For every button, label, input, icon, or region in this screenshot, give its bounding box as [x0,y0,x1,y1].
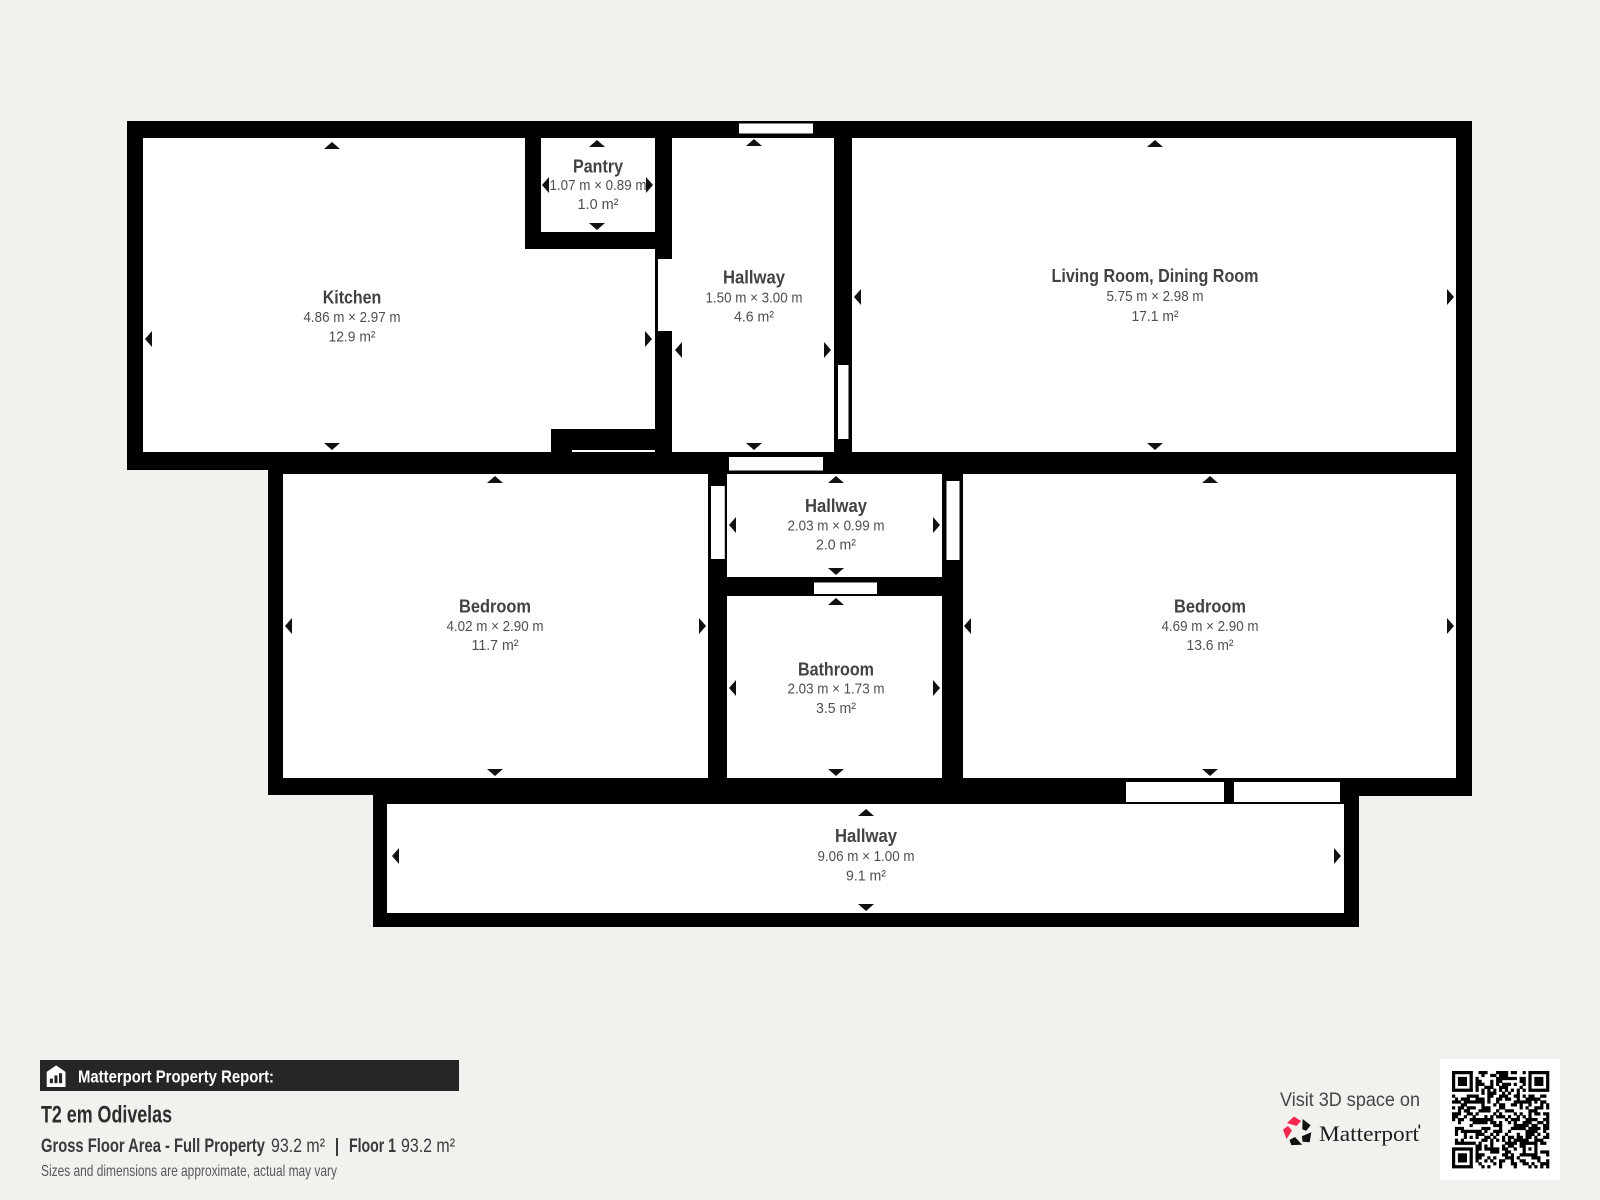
svg-text:Kitchen: Kitchen [323,287,382,308]
svg-text:Matterport Property Report:: Matterport Property Report: [78,1067,274,1087]
svg-text:Bedroom: Bedroom [1174,596,1246,617]
svg-text:5.75 m × 2.98 m: 5.75 m × 2.98 m [1107,288,1204,305]
svg-text:93.2 m²: 93.2 m² [271,1136,325,1157]
svg-text:Visit 3D space on: Visit 3D space on [1280,1089,1420,1111]
svg-text:T2 em Odivelas: T2 em Odivelas [41,1102,172,1129]
svg-text:2.0 m²: 2.0 m² [816,537,856,554]
svg-text:4.02 m × 2.90 m: 4.02 m × 2.90 m [447,618,544,635]
svg-text:11.7 m²: 11.7 m² [472,637,519,654]
svg-text:Hallway: Hallway [805,495,868,516]
svg-text:1.07 m × 0.89 m: 1.07 m × 0.89 m [550,177,647,194]
svg-text:Pantry: Pantry [573,156,624,177]
svg-text:13.6 m²: 13.6 m² [1187,637,1234,654]
svg-text:1.0 m²: 1.0 m² [578,196,619,213]
svg-text:4.6 m²: 4.6 m² [734,308,774,325]
svg-text:3.5 m²: 3.5 m² [816,700,856,717]
svg-text:4.86 m × 2.97 m: 4.86 m × 2.97 m [304,309,401,326]
svg-text:Matterport: Matterport [1319,1121,1419,1146]
svg-text:Hallway: Hallway [723,266,786,287]
svg-text:Hallway: Hallway [835,825,898,846]
svg-text:2.03 m × 1.73 m: 2.03 m × 1.73 m [788,681,885,698]
svg-text:Living Room, Dining Room: Living Room, Dining Room [1052,265,1259,286]
svg-text:12.9 m²: 12.9 m² [329,328,376,345]
svg-text:17.1 m²: 17.1 m² [1132,308,1179,325]
svg-text:Floor 1: Floor 1 [349,1136,396,1157]
svg-text:9.06 m × 1.00 m: 9.06 m × 1.00 m [818,848,915,865]
svg-text:93.2 m²: 93.2 m² [401,1136,455,1157]
svg-text:4.69 m × 2.90 m: 4.69 m × 2.90 m [1162,618,1259,635]
svg-text:9.1 m²: 9.1 m² [846,868,886,885]
svg-text:Bathroom: Bathroom [798,658,874,679]
svg-text:Gross Floor Area - Full Proper: Gross Floor Area - Full Property [41,1136,265,1157]
svg-text:1.50 m × 3.00 m: 1.50 m × 3.00 m [706,289,803,306]
svg-text:2.03 m × 0.99 m: 2.03 m × 0.99 m [788,518,885,535]
svg-text:Bedroom: Bedroom [459,596,531,617]
svg-text:Sizes and dimensions are appro: Sizes and dimensions are approximate, ac… [41,1163,337,1180]
